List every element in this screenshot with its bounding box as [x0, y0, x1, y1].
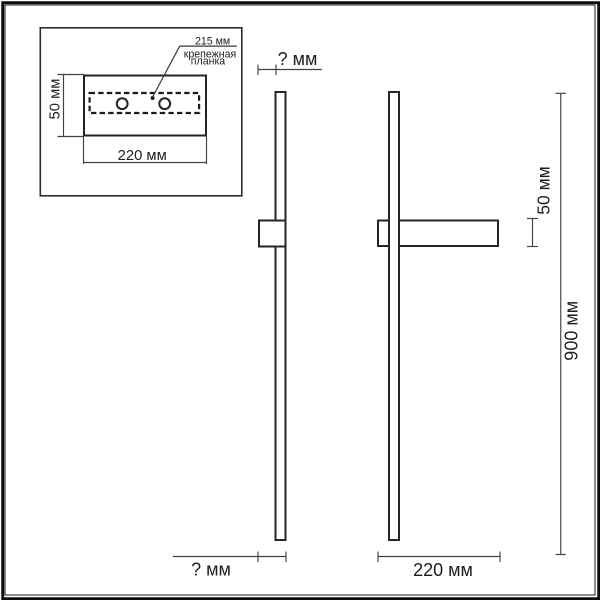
svg-text:215 мм: 215 мм [195, 35, 230, 47]
svg-text:220 мм: 220 мм [118, 148, 167, 164]
svg-text:50 мм: 50 мм [48, 79, 64, 120]
svg-text:планка: планка [191, 56, 226, 68]
svg-text:? мм: ? мм [191, 560, 231, 580]
svg-text:900 мм: 900 мм [562, 301, 582, 361]
svg-text:220 мм: 220 мм [413, 560, 473, 580]
svg-text:50 мм: 50 мм [534, 166, 554, 214]
svg-text:? мм: ? мм [278, 49, 318, 69]
